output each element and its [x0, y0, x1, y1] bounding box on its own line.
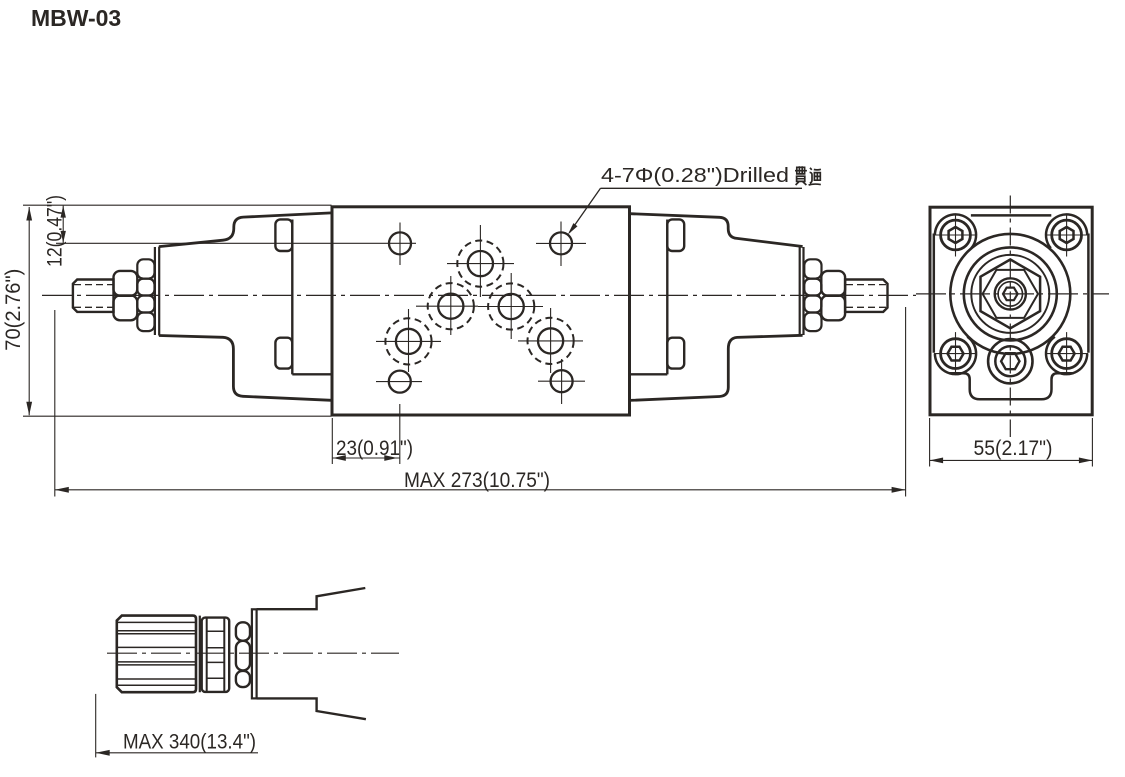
- svg-text:MBW-03: MBW-03: [31, 5, 122, 31]
- svg-text:23(0.91"): 23(0.91"): [336, 437, 413, 460]
- svg-text:12(0.47"): 12(0.47"): [44, 195, 67, 267]
- svg-text:55(2.17"): 55(2.17"): [974, 437, 1053, 460]
- svg-text:MAX 273(10.75"): MAX 273(10.75"): [404, 469, 550, 492]
- svg-text:4-7Φ(0.28")Drilled: 4-7Φ(0.28")Drilled: [601, 165, 789, 187]
- svg-text:70(2.76"): 70(2.76"): [2, 269, 25, 351]
- svg-text:MAX 340(13.4"): MAX 340(13.4"): [123, 731, 256, 754]
